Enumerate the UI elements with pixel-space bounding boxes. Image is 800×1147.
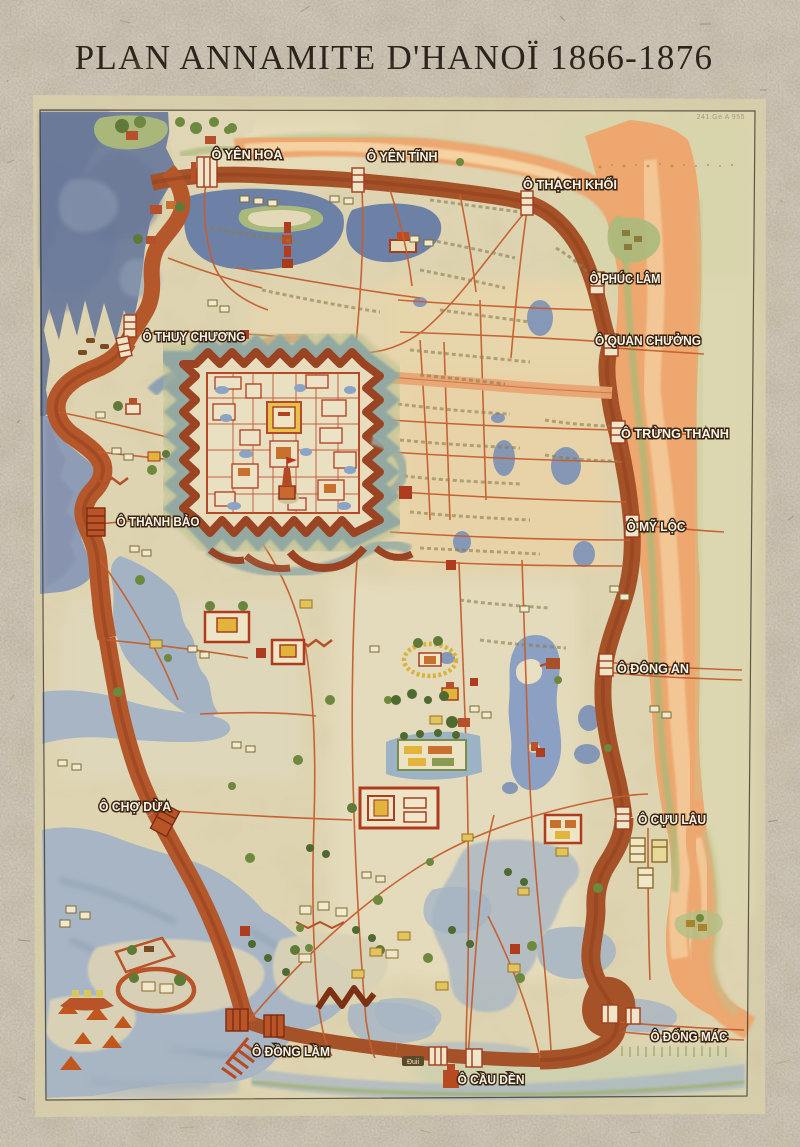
svg-text:241.Gé A 955: 241.Gé A 955: [697, 114, 745, 121]
svg-text:Ô THẠCH KHỐI: Ô THẠCH KHỐI: [523, 177, 617, 192]
svg-text:Ô TRỪNG THANH: Ô TRỪNG THANH: [621, 426, 729, 441]
svg-text:Ô THUỴ CHƯƠNG: Ô THUỴ CHƯƠNG: [143, 329, 246, 344]
svg-text:Ô ĐÔNG AN: Ô ĐÔNG AN: [617, 661, 689, 676]
svg-text:Ô MỸ LỘC: Ô MỸ LỘC: [627, 519, 687, 534]
svg-text:Ô CHỢ DỪA: Ô CHỢ DỪA: [99, 799, 172, 814]
svg-text:Ô YÊN HOA: Ô YÊN HOA: [212, 147, 284, 162]
svg-text:PLAN ANNAMITE D'HANOÏ 1866-187: PLAN ANNAMITE D'HANOÏ 1866-1876: [75, 38, 714, 77]
svg-text:Ô PHÚC LÂM: Ô PHÚC LÂM: [590, 271, 661, 286]
svg-text:Ô CỰU LÂU: Ô CỰU LÂU: [638, 812, 706, 827]
svg-text:Ô QUAN CHƯỞNG: Ô QUAN CHƯỞNG: [595, 333, 701, 348]
svg-text:Ô THANH BẢO: Ô THANH BẢO: [117, 514, 200, 529]
svg-text:Ô ĐỐNG MÁC: Ô ĐỐNG MÁC: [651, 1029, 729, 1044]
svg-text:Ô YÊN TĨNH: Ô YÊN TĨNH: [367, 149, 438, 164]
svg-text:Ô CẦU DỀN: Ô CẦU DỀN: [458, 1072, 525, 1087]
svg-text:Đuii: Đuii: [407, 1059, 420, 1066]
svg-text:Ô ĐỒNG LẦM: Ô ĐỒNG LẦM: [252, 1044, 330, 1059]
